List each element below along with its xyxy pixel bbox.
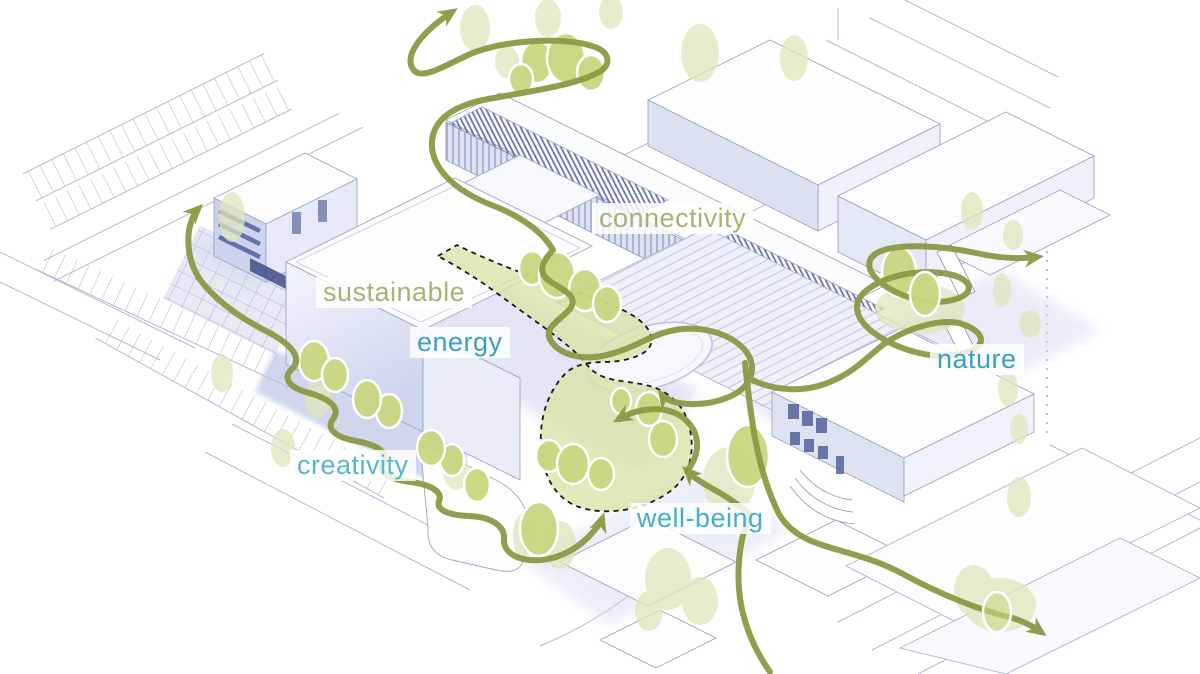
label-well-being: well-being (630, 503, 771, 534)
label-connectivity: connectivity (592, 203, 753, 234)
concept-diagram: connectivity sustainable energy nature c… (0, 0, 1200, 674)
concept-diagram-artwork (0, 0, 1200, 674)
label-nature: nature (930, 344, 1024, 375)
label-creativity: creativity (290, 450, 416, 481)
label-sustainable: sustainable (316, 277, 472, 308)
label-energy: energy (410, 327, 510, 358)
